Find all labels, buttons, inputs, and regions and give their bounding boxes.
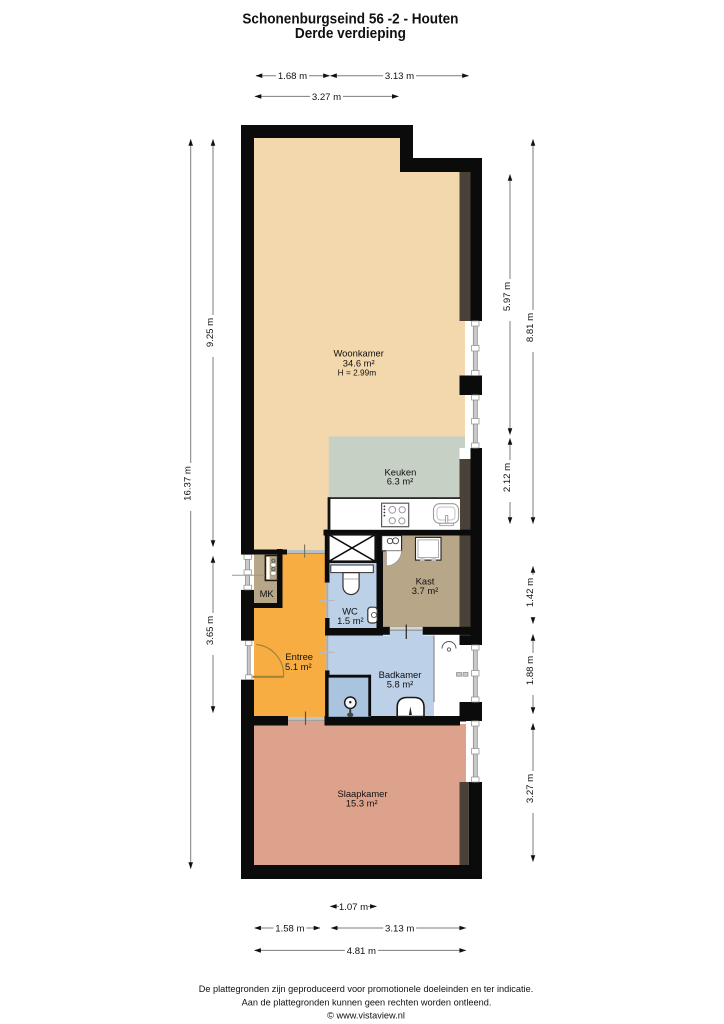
svg-text:Derde verdieping: Derde verdieping <box>295 25 406 42</box>
svg-text:8.81 m: 8.81 m <box>525 313 536 342</box>
svg-text:1.88 m: 1.88 m <box>525 656 536 685</box>
svg-text:2.12 m: 2.12 m <box>502 463 513 492</box>
svg-text:16.37 m: 16.37 m <box>183 466 194 501</box>
svg-text:5.1 m²: 5.1 m² <box>285 661 312 672</box>
svg-text:3.13 m: 3.13 m <box>385 924 414 935</box>
svg-text:1.58 m: 1.58 m <box>275 924 304 935</box>
svg-text:1.42 m: 1.42 m <box>525 578 536 607</box>
svg-text:4.81 m: 4.81 m <box>347 946 376 957</box>
svg-text:1.5 m²: 1.5 m² <box>337 615 364 626</box>
svg-text:1.68 m: 1.68 m <box>278 71 307 82</box>
svg-text:1.07 m: 1.07 m <box>339 902 368 913</box>
svg-text:3.27 m: 3.27 m <box>525 774 536 803</box>
svg-text:9.25 m: 9.25 m <box>205 318 216 347</box>
svg-text:© www.vistaview.nl: © www.vistaview.nl <box>327 1010 405 1020</box>
svg-text:H = 2.99m: H = 2.99m <box>338 368 377 378</box>
svg-text:Aan de plattegronden kunnen ge: Aan de plattegronden kunnen geen rechten… <box>242 997 492 1007</box>
svg-text:3.65 m: 3.65 m <box>205 616 216 645</box>
svg-text:3.27 m: 3.27 m <box>312 92 341 103</box>
svg-text:MK: MK <box>260 588 275 599</box>
svg-text:De plattegronden zijn geproduc: De plattegronden zijn geproduceerd voor … <box>199 984 534 994</box>
svg-text:5.8 m²: 5.8 m² <box>387 679 414 690</box>
svg-text:3.13 m: 3.13 m <box>385 71 414 82</box>
svg-text:5.97 m: 5.97 m <box>502 282 513 311</box>
svg-text:15.3 m²: 15.3 m² <box>346 798 378 809</box>
svg-text:6.3 m²: 6.3 m² <box>387 476 414 487</box>
svg-text:3.7 m²: 3.7 m² <box>412 585 439 596</box>
